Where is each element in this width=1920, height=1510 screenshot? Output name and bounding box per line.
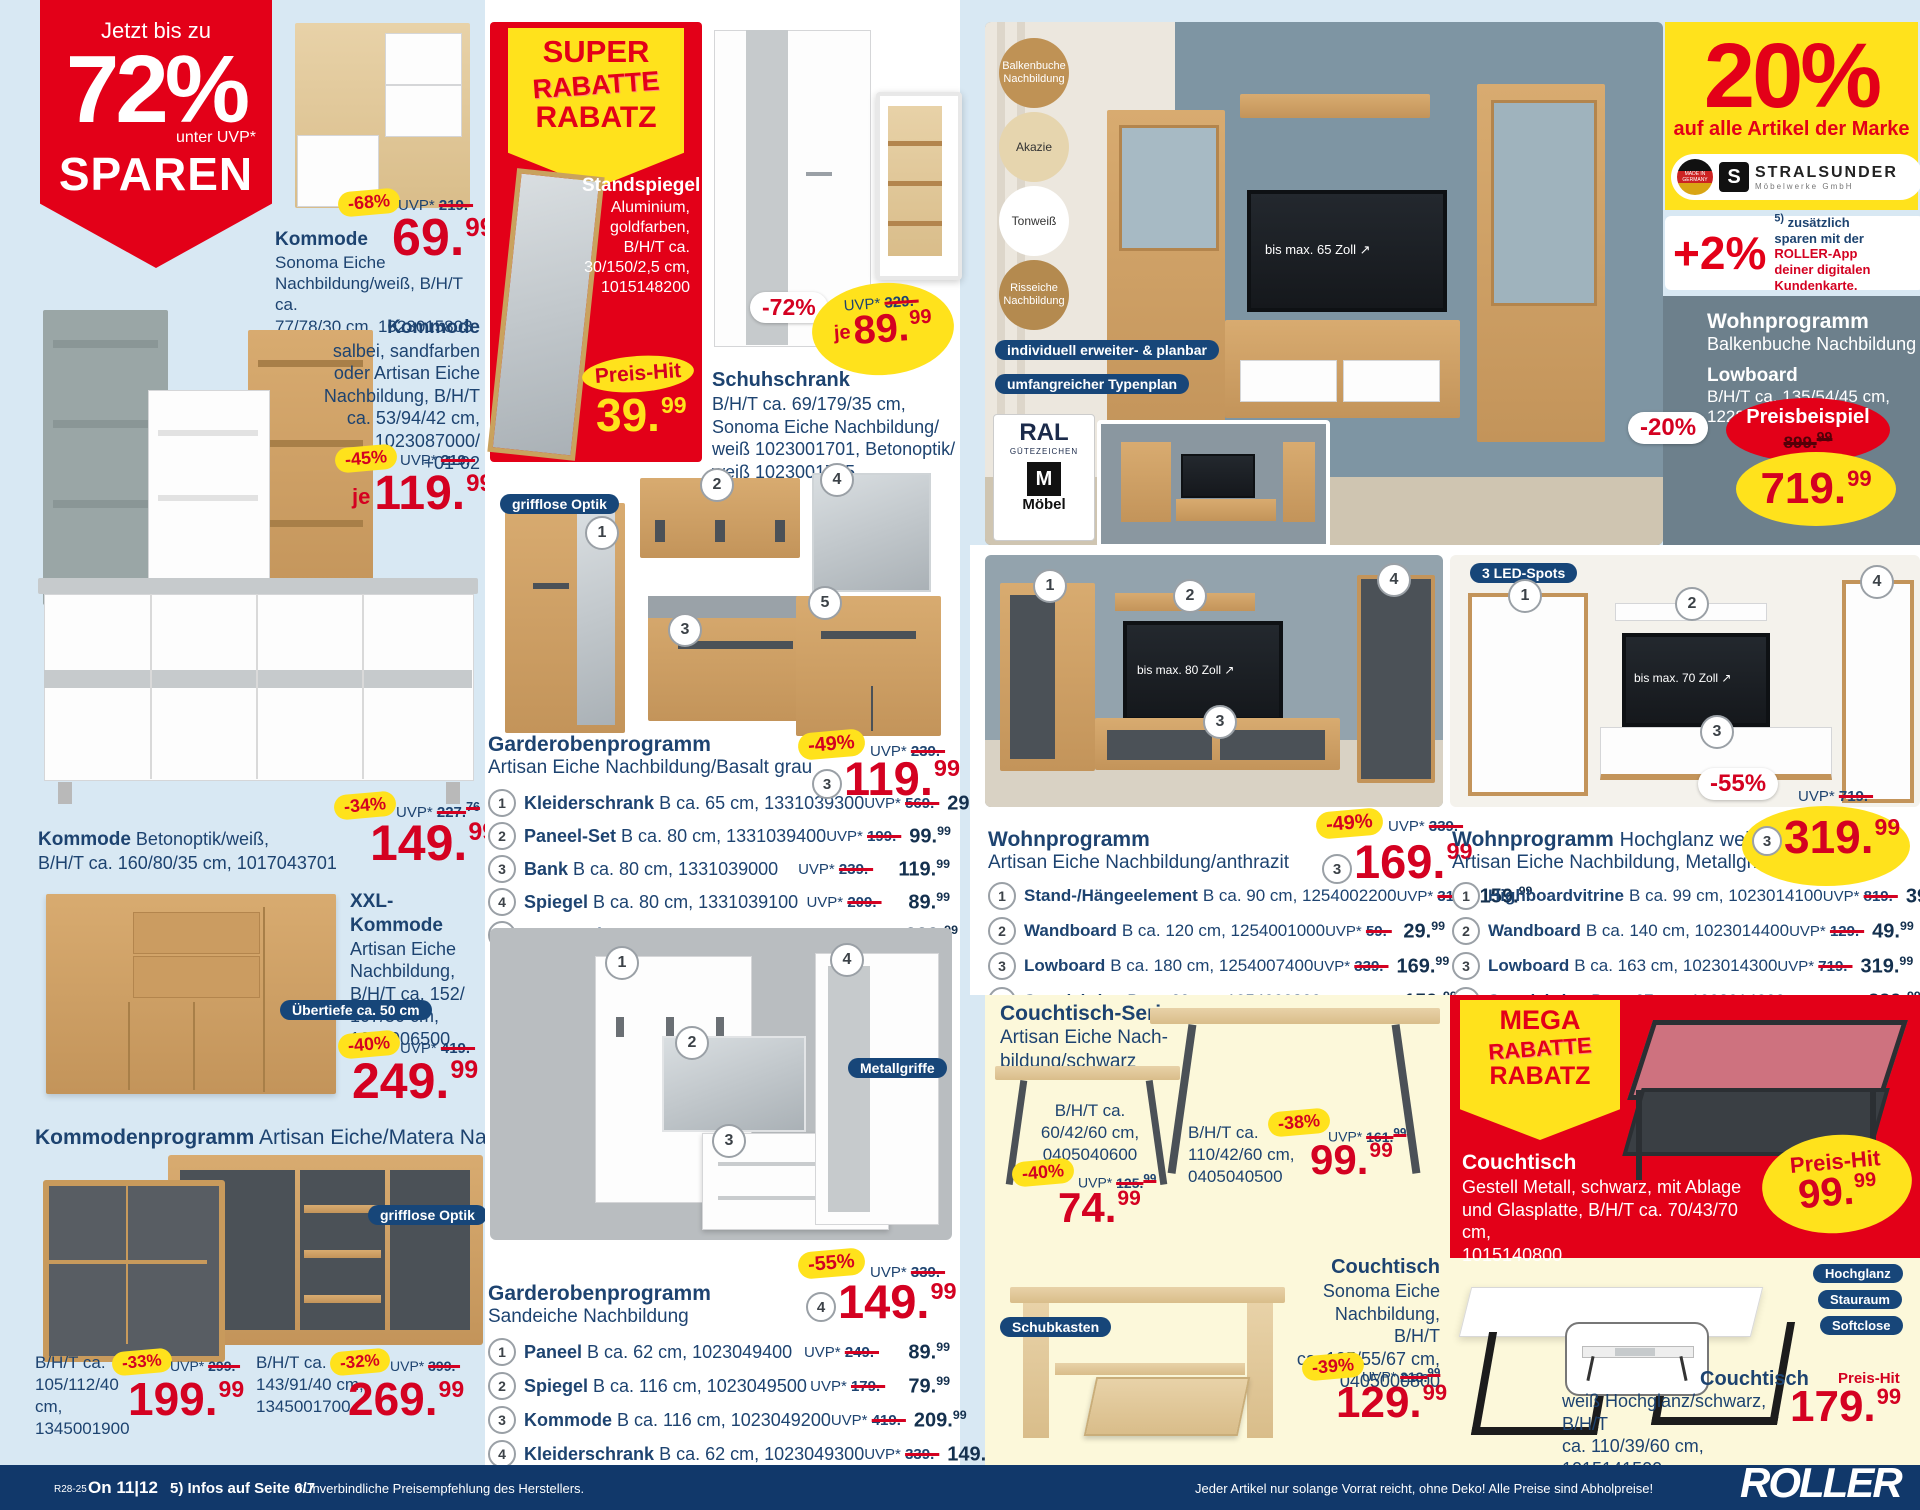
price: 149.99	[370, 822, 496, 865]
furniture-vitrine	[1477, 84, 1605, 442]
roller-app-logo: ROLLER	[1774, 246, 1827, 261]
furniture-shelf-line	[888, 181, 942, 186]
furniture-drawer	[1240, 360, 1337, 402]
furniture-drawer	[133, 912, 260, 954]
list-item: 3LowboardB ca. 163 cm, 1023014300 UVP* 7…	[1452, 952, 1910, 980]
garderobe2-list: -55% UVP* 339.- 4 149.99 Garderobenprogr…	[488, 1252, 950, 1468]
furniture-shelf-line	[53, 340, 158, 348]
furniture-lowboard	[1225, 320, 1460, 418]
app-text4: Kundenkarte.	[1774, 278, 1870, 294]
rabatz-shield: MEGA RABATTE RABATZ	[1460, 1000, 1620, 1140]
item-circle-2: 2	[1675, 587, 1709, 621]
program-title: Kommodenprogramm	[35, 1126, 254, 1149]
furniture-top	[38, 578, 478, 594]
rabatz-shield: SUPER RABATTE RABATZ	[508, 28, 684, 188]
product-photo-couchtisch-sonoma: Schubkasten	[995, 1245, 1305, 1460]
program-title: Wohnprogramm	[988, 828, 1150, 852]
ral-label: RAL	[994, 419, 1094, 447]
tv-size-label: bis max. 70 Zoll ↗	[1634, 671, 1731, 685]
product-info: Couchtisch Gestell Metall, schwarz, mit …	[1462, 1150, 1752, 1266]
program-title: Wohnprogramm Hochglanz weiß/	[1452, 828, 1767, 852]
stralsunder-s-icon: S	[1719, 162, 1749, 192]
feature-badge: Stauraum	[1818, 1290, 1902, 1309]
furniture-shelf-line	[258, 520, 363, 527]
app-promo-box: +2% 5) zusätzlich sparen mit der ROLLER-…	[1665, 216, 1920, 290]
footer-info: 5) Infos auf Seite 6/7	[170, 1480, 315, 1497]
item-circle-4: 4	[1860, 565, 1894, 599]
room-photo-hochglanz: bis max. 70 Zoll ↗ 3 LED-Spots 1 2 3 4	[1450, 555, 1920, 807]
price-ref-circle: 3	[1752, 826, 1782, 856]
app-text3: deiner digitalen	[1774, 262, 1870, 278]
item-circle-2: 2	[675, 1026, 709, 1060]
mega-rabatte-panel: MEGA RABATTE RABATZ Couchtisch Gestell M…	[1450, 995, 1920, 1258]
product-name: Schuhschrank	[712, 368, 957, 393]
feature-badge: Hochglanz	[1813, 1264, 1903, 1283]
brand-percent: 20%	[1665, 30, 1918, 122]
feature-badge: grifflose Optik	[368, 1205, 487, 1225]
product-info: Kommode Betonoptik/weiß, B/H/T ca. 160/8…	[38, 828, 348, 874]
hero-line2: SPAREN	[40, 147, 272, 201]
tv: bis max. 70 Zoll ↗	[1622, 633, 1770, 727]
table-drawer-open	[1084, 1377, 1251, 1436]
furniture-hook	[715, 520, 725, 542]
price: 199.99	[128, 1380, 244, 1419]
product-name: Lowboard	[1707, 365, 1920, 387]
ral-guetezeichen: RAL GÜTEZEICHEN M Möbel	[993, 414, 1095, 541]
garderobe1-list: -49% UVP* 239.- 3 119.99 Garderobenprogr…	[488, 733, 950, 949]
super-rabatte-panel: SUPER RABATTE RABATZ Standspiegel Alumin…	[490, 22, 702, 462]
price-ref-circle: 3	[812, 769, 842, 799]
brand-name: STRALSUNDER	[1755, 164, 1898, 182]
product-name: Kommode	[38, 829, 131, 850]
rabatz-line3: RABATZ	[1460, 1062, 1620, 1091]
furniture-panel	[828, 966, 870, 1212]
price: 99.99	[1797, 1172, 1879, 1213]
furniture-leg	[58, 782, 72, 804]
ral-sublabel: GÜTEZEICHEN	[994, 447, 1094, 456]
item-circle-3: 3	[1700, 715, 1734, 749]
item-circle-4: 4	[820, 463, 854, 497]
furniture-shelf-line	[53, 500, 158, 508]
furniture-drawer	[1343, 360, 1440, 402]
product-photo-xxl-kommode	[38, 882, 343, 1112]
item-circle-1: 1	[1033, 569, 1067, 603]
table-leg	[1247, 1303, 1273, 1438]
product-photo-kommode-sonoma	[285, 15, 480, 215]
product-info: Standspiegel Aluminium, goldfarben, B/H/…	[582, 174, 690, 298]
furniture-handle	[821, 631, 916, 639]
tv-size-label: bis max. 80 Zoll ↗	[1137, 663, 1234, 677]
program-title: Wohnprogramm	[1707, 310, 1920, 334]
furniture-handle	[533, 583, 569, 589]
price: 129.99	[1336, 1384, 1447, 1421]
material-circle: Risseiche Nachbildung	[999, 260, 1069, 330]
footer-code: R28-25	[54, 1484, 87, 1495]
app-text1: zusätzlich	[1788, 215, 1850, 230]
feature-badge: Metallgriffe	[848, 1058, 947, 1078]
furniture-mini	[1121, 442, 1171, 522]
tv-mini	[1181, 454, 1255, 498]
furniture-door	[390, 1170, 470, 1330]
price-bubble: 719.99	[1736, 452, 1896, 526]
item-circle-3: 3	[668, 613, 702, 647]
furniture-hook	[716, 1017, 724, 1037]
footer-bar: R28-25 On 11|12 5) Infos auf Seite 6/7 *…	[0, 1465, 1920, 1510]
furniture-standvitrine	[1357, 575, 1435, 783]
furniture-shelf-line	[888, 221, 942, 226]
furniture-door-line	[128, 1002, 130, 1090]
furniture-drawer	[1107, 730, 1212, 760]
mini-table-leg	[1586, 1356, 1594, 1381]
feature-badge: Schubkasten	[1000, 1317, 1111, 1337]
furniture-shelf-line	[53, 420, 158, 428]
price: je 119.99	[352, 474, 493, 515]
price: 74.99	[1058, 1190, 1141, 1226]
price: 39.99	[596, 396, 687, 435]
furniture-drawer	[1220, 730, 1325, 760]
furniture-small-kommode	[43, 1180, 225, 1362]
furniture-shelf-line	[888, 141, 942, 146]
item-circle-1: 1	[1508, 579, 1542, 613]
tv: bis max. 65 Zoll ↗	[1247, 190, 1447, 312]
made-in-germany-icon: MADE IN GERMANY	[1677, 159, 1713, 195]
price-ref-circle: 4	[806, 1292, 836, 1322]
program-subtitle: Balkenbuche Nachbildung	[1707, 334, 1920, 355]
list-item: 2Paneel-SetB ca. 80 cm, 1331039400 UVP* …	[488, 822, 950, 850]
item-circle-2: 2	[1173, 579, 1207, 613]
furniture-handle	[304, 1250, 381, 1258]
rabatz-line3: RABATZ	[508, 101, 684, 135]
furniture-mini	[1176, 499, 1276, 521]
footer-issue: On 11|12	[88, 1478, 158, 1498]
brand-promo-box: 20% auf alle Artikel der Marke MADE IN G…	[1665, 22, 1918, 210]
product-info: XXL-Kommode Artisan Eiche Nachbildung, B…	[350, 890, 480, 1050]
furniture-handle	[806, 172, 832, 176]
furniture-shelf-line	[49, 1260, 207, 1264]
price: 269.99	[348, 1380, 464, 1419]
furniture-drawer	[133, 956, 260, 998]
product-name: Standspiegel	[582, 174, 690, 198]
price: 719.99	[1760, 470, 1871, 507]
furniture-door-line	[150, 594, 152, 779]
furniture-standvitrine	[1842, 580, 1914, 803]
product-desc: Aluminium, goldfarben, B/H/T ca. 30/150/…	[582, 198, 690, 298]
list-item: 1HighboardvitrineB ca. 99 cm, 1023014100…	[1452, 882, 1910, 910]
inset-photo	[1565, 1322, 1709, 1396]
flyer-page: Jetzt bis zu 72% unter UVP* SPAREN -68% …	[0, 0, 1920, 1510]
furniture-door	[1010, 595, 1055, 759]
inset-photo	[1097, 420, 1330, 545]
product-photo-kommodenprogramm	[38, 1150, 483, 1350]
furniture-drawer	[385, 33, 462, 85]
furniture-door-line	[256, 594, 258, 779]
list-item: 3BankB ca. 80 cm, 1331039000 UVP* 239.- …	[488, 855, 950, 883]
list-item: 4KleiderschrankB ca. 62 cm, 1023049300 U…	[488, 1440, 950, 1468]
preisbeispiel-label: Preisbeispiel	[1726, 406, 1890, 429]
brand-text: auf alle Artikel der Marke	[1665, 118, 1918, 141]
price: 179.99	[1790, 1388, 1901, 1425]
price: 319.99	[1784, 818, 1900, 857]
furniture-haengeelement	[1000, 583, 1095, 771]
product-dims: B/H/T ca. 60/42/60 cm, 0405040600	[1030, 1100, 1150, 1166]
price-ref-circle: 3	[1322, 854, 1352, 884]
room-photo-balkenbuche: bis max. 65 Zoll ↗ Balkenbuche Nachbildu…	[985, 22, 1663, 545]
moebel-m-icon: M	[1027, 462, 1061, 496]
material-circle: Tonweiß	[999, 186, 1069, 256]
feature-badge: Übertiefe ca. 50 cm	[280, 1000, 432, 1020]
mini-table-leg	[1679, 1356, 1687, 1381]
uvp-price: UVP* 299.-	[170, 1358, 240, 1374]
furniture-glass	[1491, 100, 1597, 306]
brand-sub: Möbelwerke GmbH	[1755, 182, 1898, 191]
furniture-handle	[304, 1295, 381, 1303]
list-item: 1PaneelB ca. 62 cm, 1023049400 UVP* 249.…	[488, 1338, 950, 1366]
furniture-door-line	[362, 594, 364, 779]
table-leg	[1392, 1024, 1421, 1174]
furniture-door-line	[871, 686, 873, 731]
furniture-mini	[1283, 442, 1315, 522]
furniture-wandboard	[1240, 94, 1430, 118]
list-item: 2WandboardB ca. 120 cm, 1254001000 UVP* …	[988, 917, 1445, 945]
price: je 89.99	[833, 309, 934, 350]
furniture-door-line	[126, 1186, 128, 1344]
item-circle-3: 3	[712, 1124, 746, 1158]
furniture-kleiderschrank	[815, 953, 939, 1225]
brand-logo-pill: MADE IN GERMANY S STRALSUNDER Möbelwerke…	[1671, 154, 1920, 200]
tv: bis max. 80 Zoll ↗	[1123, 621, 1283, 721]
mini-table-insert	[1615, 1348, 1655, 1356]
app-note: 5)	[1774, 213, 1784, 225]
list-item: 1Stand-/HängeelementB ca. 90 cm, 1254002…	[988, 882, 1445, 910]
item-circle-1: 1	[605, 946, 639, 980]
price: 119.99	[844, 759, 960, 799]
footer-availability: Jeder Artikel nur solange Vorrat reicht,…	[1195, 1481, 1653, 1496]
list-item: 4SpiegelB ca. 80 cm, 1331039100 UVP* 209…	[488, 888, 950, 916]
app-suffix: -App	[1828, 246, 1858, 261]
furniture-glass	[1119, 125, 1219, 251]
room-photo-artisan: bis max. 80 Zoll ↗ 1 2 3 4	[985, 555, 1443, 807]
furniture-door-line	[263, 907, 265, 1092]
list-item: 3LowboardB ca. 180 cm, 1254007400 UVP* 3…	[988, 952, 1445, 980]
program-subtitle: Artisan Eiche Nachbildung, Metallgriffe	[1452, 852, 1778, 874]
furniture-shelf-line	[158, 430, 258, 436]
product-name: XXL-Kommode	[350, 890, 480, 938]
feature-badge: umfangreicher Typenplan	[995, 374, 1189, 394]
moebel-label: Möbel	[994, 496, 1094, 513]
hero-percent: 72%	[40, 44, 272, 135]
feature-badge: individuell erweiter- & planbar	[995, 340, 1219, 360]
feature-badge: grifflose Optik	[500, 494, 619, 514]
item-circle-4: 4	[830, 943, 864, 977]
furniture-hook	[655, 520, 665, 542]
price: 99.99	[1310, 1142, 1393, 1178]
item-circle-3: 3	[1203, 705, 1237, 739]
uvp-price: UVP* 399.-	[390, 1358, 460, 1374]
product-name: Kommode	[275, 228, 485, 252]
list-item: 2SpiegelB ca. 116 cm, 1023049500 UVP* 17…	[488, 1372, 950, 1400]
program-title: Couchtisch-Serie	[1000, 1002, 1173, 1026]
product-photo-sideboard-beton	[38, 560, 480, 810]
price: 249.99	[352, 1060, 478, 1103]
material-circle: Balkenbuche Nachbildung	[999, 38, 1069, 108]
price: 149.99	[838, 1282, 957, 1322]
program-subtitle: Artisan Eiche Nachbildung/anthrazit	[988, 852, 1289, 874]
furniture-shoe-rack	[876, 92, 962, 280]
discount-badge: -55%	[1698, 768, 1778, 800]
price-prefix: je	[352, 488, 370, 507]
table-shelf	[1055, 1363, 1245, 1375]
furniture-drawer	[385, 85, 462, 137]
product-photo-garderobe2: 1 2 3 4	[490, 928, 952, 1240]
feature-badge: Softclose	[1820, 1316, 1903, 1335]
item-circle-5: 5	[808, 586, 842, 620]
furniture-shelf-line	[158, 495, 258, 501]
table-top	[1150, 1008, 1440, 1024]
roller-logo: ROLLER	[1740, 1459, 1901, 1507]
furniture-band	[44, 670, 472, 688]
furniture-door-line	[193, 1002, 195, 1090]
item-circle-2: 2	[700, 468, 734, 502]
item-circle-1: 1	[585, 516, 619, 550]
list-item: 3KommodeB ca. 116 cm, 1023049200 UVP* 41…	[488, 1406, 950, 1434]
app-text2: sparen mit der	[1774, 231, 1870, 247]
material-circle: Akazie	[999, 112, 1069, 182]
app-percent: +2%	[1673, 226, 1766, 280]
furniture-hook	[666, 1017, 674, 1037]
table-top	[1010, 1287, 1285, 1303]
footer-disclaimer: *Unverbindliche Preisempfehlung des Hers…	[298, 1481, 584, 1496]
item-circle-4: 4	[1377, 563, 1411, 597]
furniture-highboardvitrine	[1468, 593, 1588, 796]
furniture-hook	[616, 1017, 624, 1037]
product-name: Kommode	[387, 317, 480, 338]
product-name: Couchtisch	[1462, 1150, 1752, 1176]
tv-size-label: bis max. 65 Zoll ↗	[1265, 242, 1371, 258]
discount-badge: -20%	[1628, 412, 1708, 444]
list-item: 2WandboardB ca. 140 cm, 1023014400 UVP* …	[1452, 917, 1910, 945]
furniture-hook	[775, 520, 785, 542]
hero-ribbon: Jetzt bis zu 72% unter UVP* SPAREN	[40, 0, 272, 268]
product-desc: Gestell Metall, schwarz, mit Ablage und …	[1462, 1176, 1752, 1266]
uvp-price: UVP* 719.-	[1798, 788, 1873, 805]
product-name: Couchtisch	[1295, 1255, 1440, 1280]
